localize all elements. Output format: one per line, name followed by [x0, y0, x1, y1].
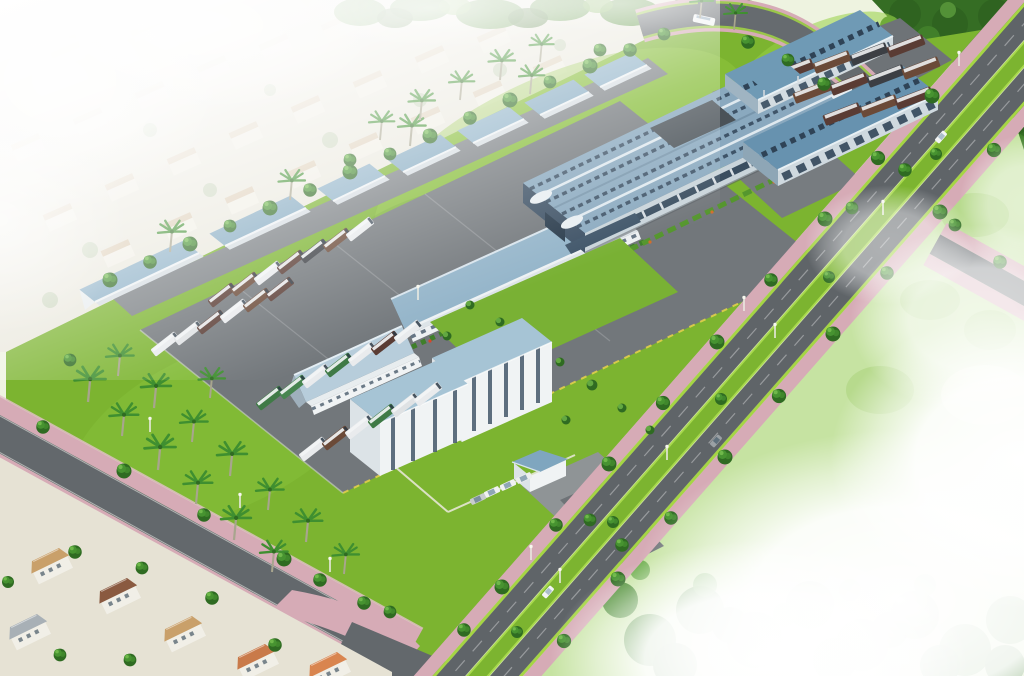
- aerial-rendering-stage: Aerial isometric architectural rendering…: [0, 0, 1024, 676]
- site-aerial-rendering: [0, 0, 1024, 676]
